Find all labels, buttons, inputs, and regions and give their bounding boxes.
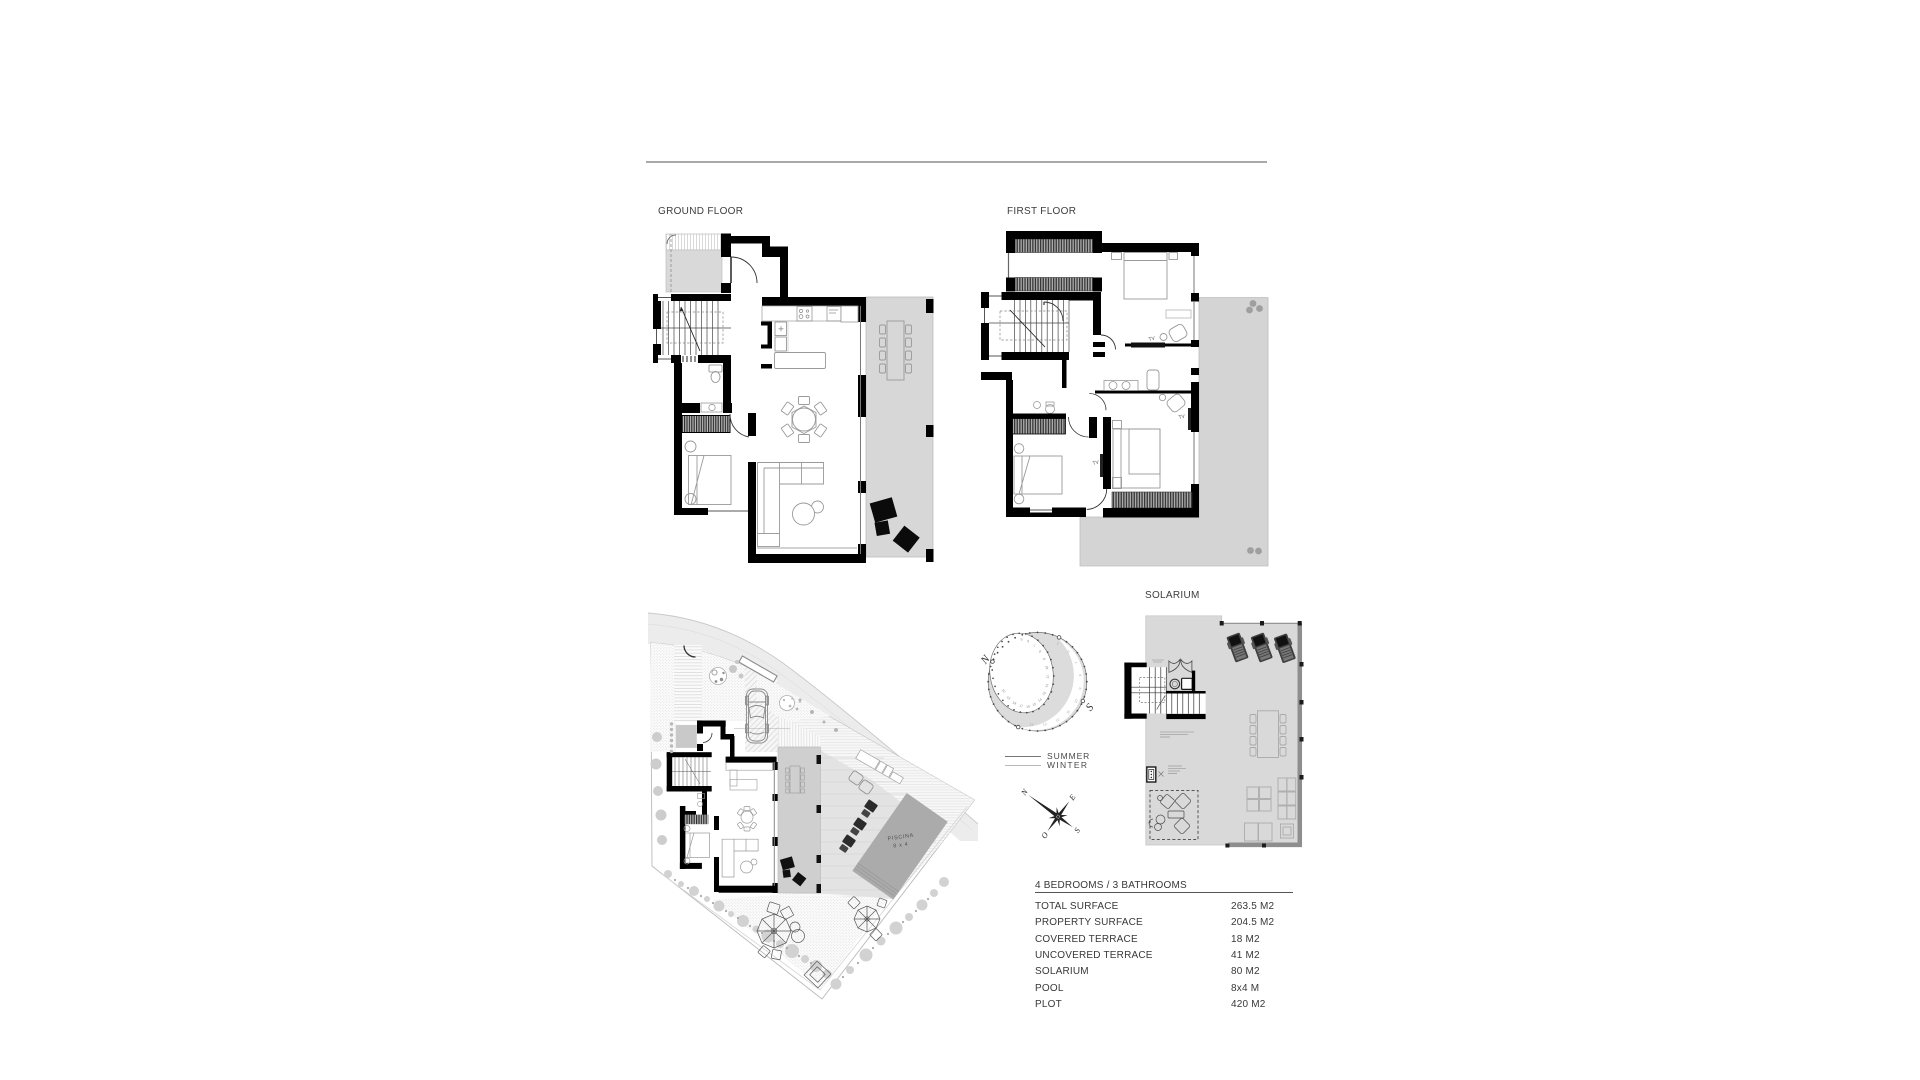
svg-text:S: S <box>1072 826 1082 835</box>
svg-text:E: E <box>1067 793 1078 803</box>
svg-text:16: 16 <box>1026 704 1030 709</box>
svg-text:14: 14 <box>1029 722 1033 727</box>
svg-text:N: N <box>1020 788 1030 798</box>
svg-text:TV: TV <box>1148 335 1156 343</box>
svg-text:O: O <box>1039 830 1050 840</box>
svg-text:11: 11 <box>1046 675 1050 679</box>
svg-text:5: 5 <box>1020 637 1022 641</box>
svg-text:TV: TV <box>1092 459 1100 467</box>
svg-text:17: 17 <box>1019 704 1023 708</box>
svg-text:TV: TV <box>1178 413 1186 421</box>
svg-text:S: S <box>1084 701 1097 713</box>
